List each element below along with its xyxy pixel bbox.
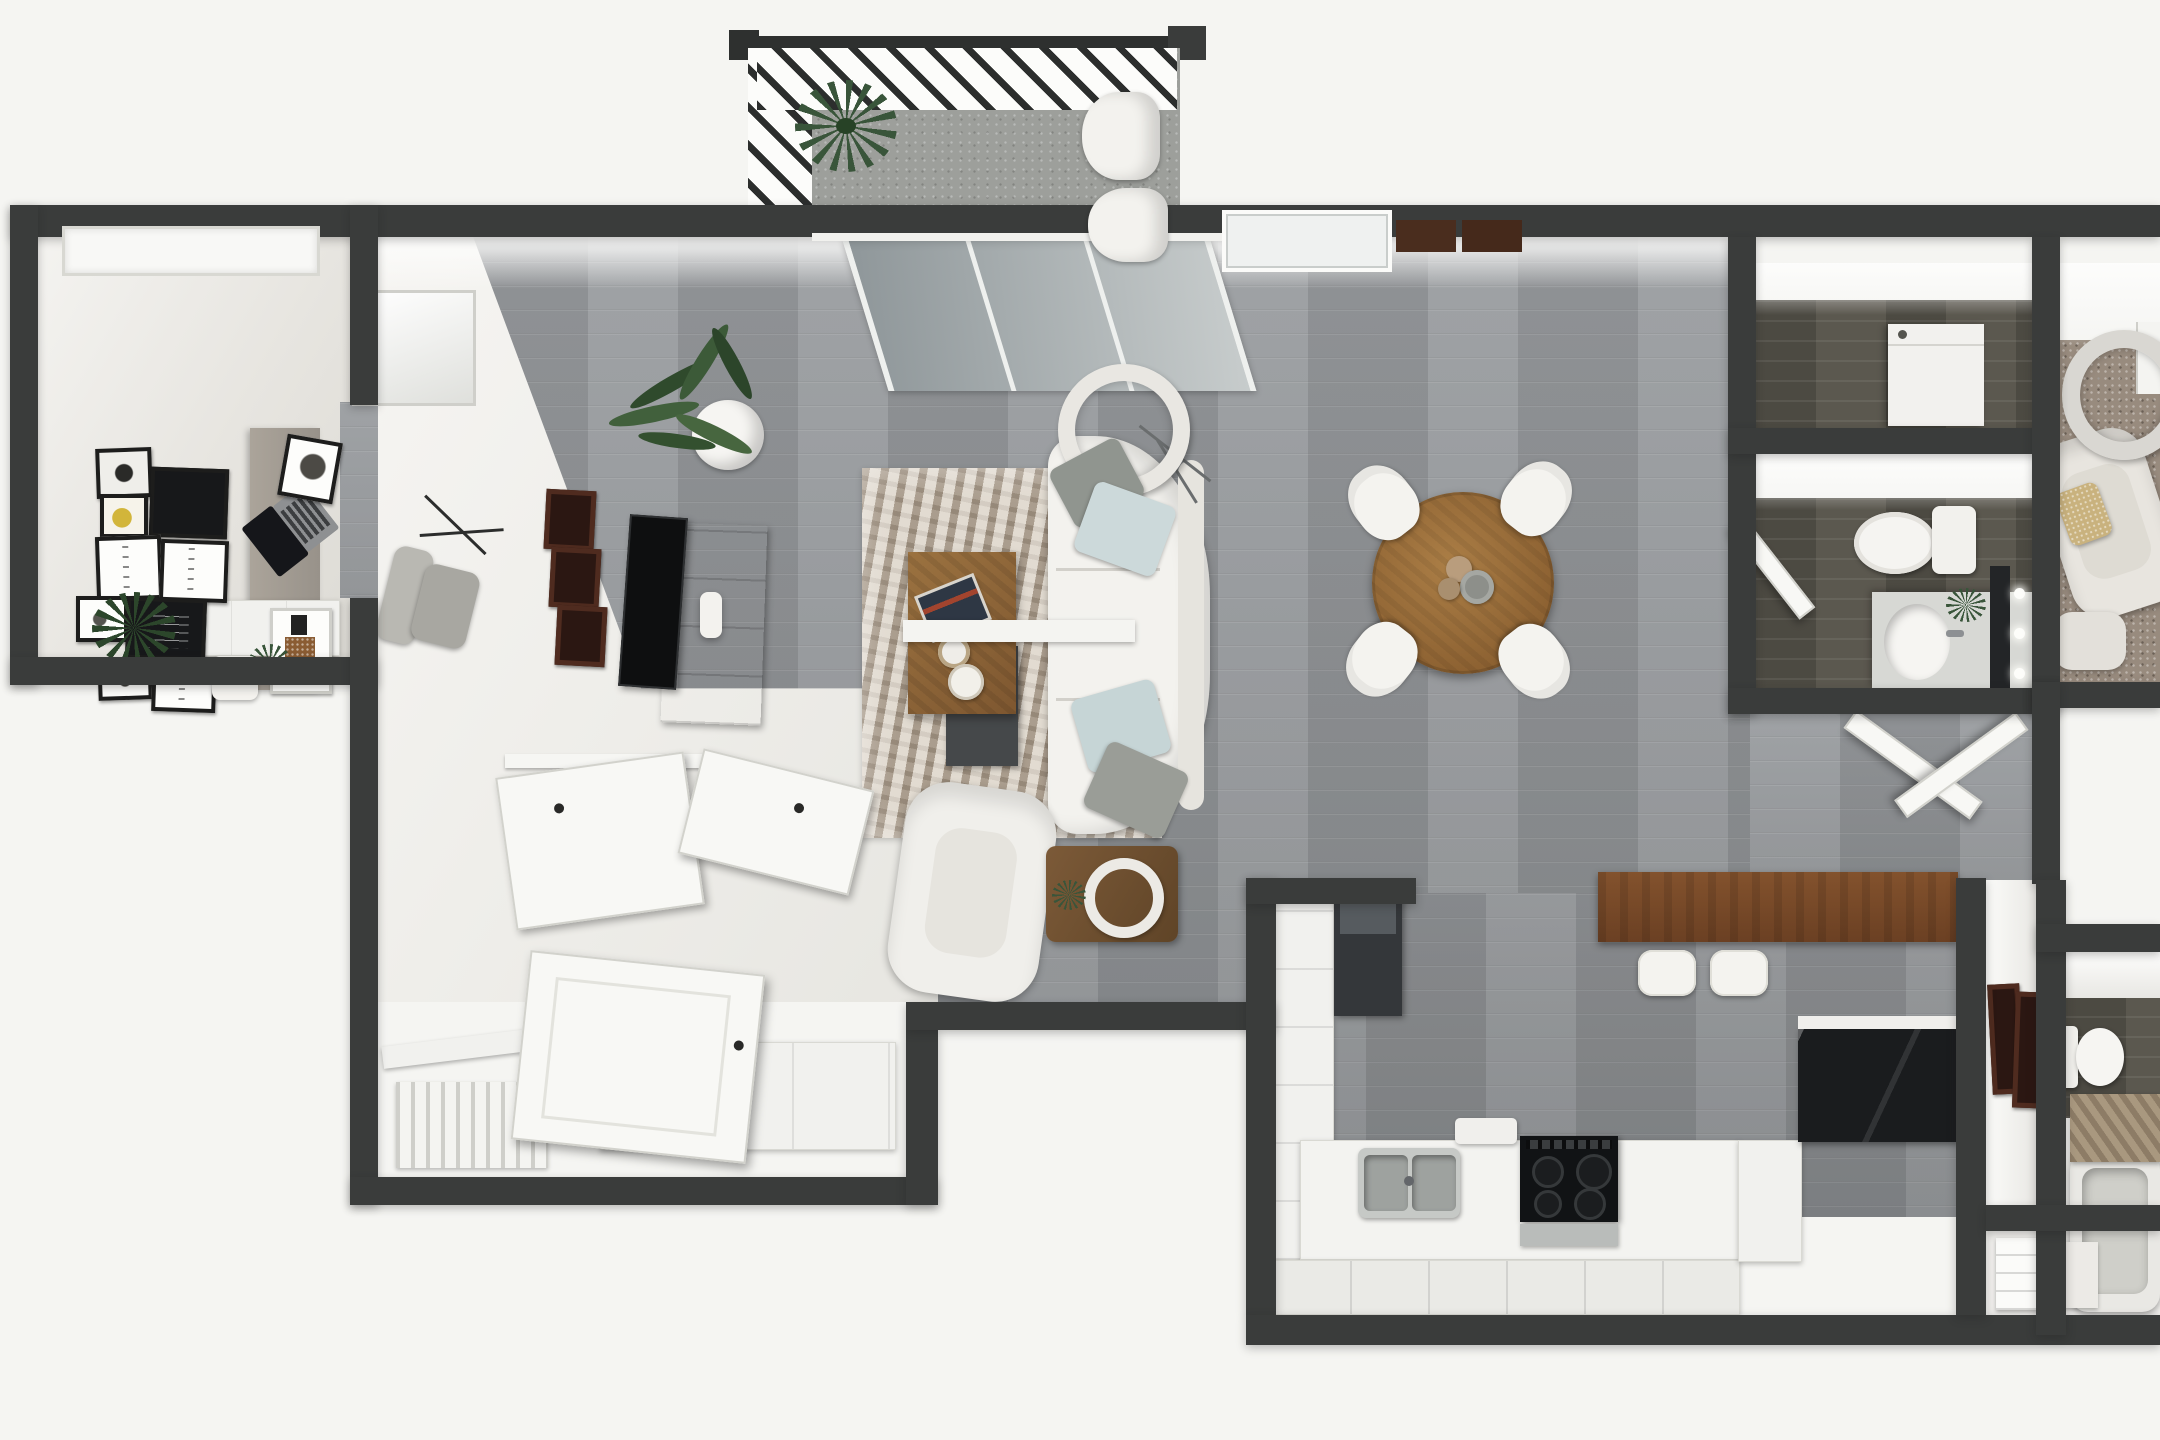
kitchen-counter-front [1272, 1260, 1740, 1315]
bar-stool [1710, 950, 1768, 996]
door-mat [1396, 220, 1456, 252]
gallery-frame [100, 494, 148, 538]
wall-kitchen-right [1956, 878, 1986, 1315]
wall-bottom-left [350, 1177, 938, 1205]
balcony-chair-1 [1082, 92, 1160, 180]
cooktop-stove [1520, 1136, 1618, 1222]
side-table-bowl [1084, 858, 1164, 938]
centerpiece-dish [1438, 578, 1460, 600]
bar-stool [1638, 950, 1696, 996]
closet-open-door-large [511, 950, 766, 1164]
centerpiece-dish [1460, 570, 1494, 604]
black-counter-edge [1798, 1016, 1958, 1029]
sconce-light [2014, 628, 2025, 639]
wall-bath2-top [2036, 924, 2160, 952]
sink-basin [1412, 1155, 1456, 1211]
office-floor-plant [92, 592, 176, 664]
pantry-top [1340, 902, 1396, 934]
balcony-plant-center [836, 118, 856, 134]
toilet-2 [2060, 1022, 2126, 1092]
snake-plant [608, 348, 768, 472]
sofa-back-edge [1178, 460, 1204, 810]
utility-closet-cap [903, 620, 1135, 642]
black-counter [1798, 1028, 1958, 1142]
burner [1534, 1190, 1562, 1218]
balcony-sliding-door [842, 239, 1256, 391]
wall-office-bottom [10, 657, 378, 685]
kitchen-sink [1358, 1148, 1460, 1218]
burner [1574, 1188, 1606, 1220]
wall-hall-right [2032, 682, 2060, 884]
refrigerator-pantry [1334, 896, 1402, 1016]
wall-bedroom-left [2032, 237, 2060, 714]
washer-seam [1888, 344, 1984, 346]
desk-art-small [291, 615, 307, 635]
bath-slat-mat [2070, 1094, 2160, 1162]
kitchen-counter-right [1738, 1140, 1802, 1262]
console-accessory [700, 592, 722, 638]
washer-box [1888, 324, 1984, 426]
gallery-frame [159, 539, 229, 603]
floor-plan-render [0, 0, 2160, 1440]
sink-faucet [1404, 1176, 1414, 1186]
wall-linen-top [1986, 1205, 2160, 1231]
vanity-sink [1884, 604, 1950, 680]
stove-controls [1526, 1140, 1612, 1149]
side-table-plant [1052, 880, 1086, 910]
vanity-plant [1946, 588, 1986, 622]
laundry-ceiling [1756, 263, 2032, 315]
wall-frame [543, 489, 596, 552]
wall-mid-horizontal [906, 1002, 1276, 1030]
door-handle [733, 1040, 744, 1051]
wall-bath-left [1728, 237, 1756, 714]
small-appliance [1455, 1118, 1517, 1144]
bathroom1-ceiling [1756, 454, 2032, 510]
door-panel-inset [541, 977, 731, 1137]
door-mat [1462, 220, 1522, 252]
bathroom2-ceiling-band [2066, 952, 2160, 998]
gallery-frame [95, 447, 153, 499]
armchair-seat [922, 825, 1021, 961]
vanity-faucet [1946, 630, 1964, 637]
wall-frame [548, 547, 601, 610]
entry-open-door [495, 752, 705, 931]
tv [618, 514, 688, 690]
office-window [62, 226, 320, 276]
gallery-frame [149, 467, 229, 540]
balcony-chair-2 [1088, 188, 1168, 262]
wall-kitchen-top-stub [1246, 878, 1416, 904]
sconce-light [2014, 668, 2025, 679]
wall-bath-bottom [1728, 688, 2040, 714]
toilet-bowl [1854, 512, 1936, 574]
breakfast-bar [1598, 872, 1958, 942]
ottoman [2054, 612, 2126, 670]
wall-kitchen-left [1246, 878, 1276, 1315]
wall-bath-divider [1728, 428, 2040, 454]
sliding-door-frame-bar [965, 239, 1016, 391]
toilet2-bowl [2076, 1028, 2124, 1086]
stove-lip [1520, 1224, 1618, 1246]
coffee-table-tray [948, 664, 984, 700]
wall-office-left [10, 205, 38, 685]
toilet-tank [1932, 506, 1976, 574]
desk-photo-frame [277, 434, 343, 505]
wall-main-left [350, 598, 378, 1205]
armchair [882, 776, 1062, 1007]
toilet-1 [1854, 506, 1980, 576]
wall-bottom-main [1246, 1315, 2160, 1345]
wall-mudroom-right [906, 1030, 938, 1205]
door-handle [793, 802, 805, 814]
burner [1532, 1156, 1564, 1188]
burner [1576, 1154, 1612, 1190]
dining-centerpiece [1438, 556, 1490, 608]
balcony-rail-bar [735, 36, 1205, 48]
sink-basin [1364, 1155, 1408, 1211]
top-wall-window [1222, 210, 1392, 272]
door-handle [553, 803, 564, 814]
bathroom-mirror [1990, 566, 2010, 698]
sconce-light [2014, 588, 2025, 599]
wall-frame [554, 605, 607, 668]
washer-knob [1898, 330, 1907, 339]
wall-office-right-upper [350, 205, 378, 405]
